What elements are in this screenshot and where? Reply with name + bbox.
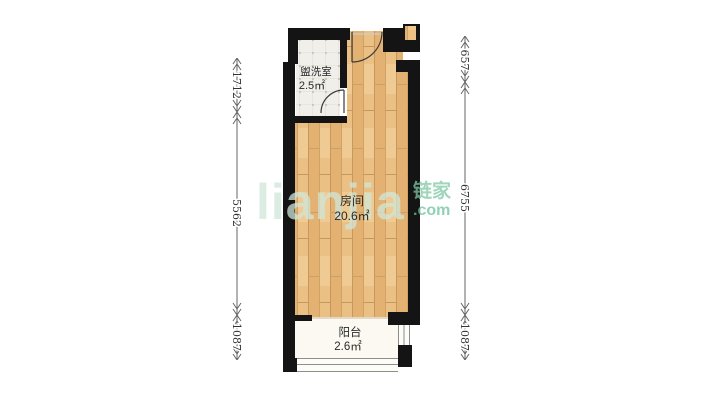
dimension-label-right-middle: 6755 (458, 184, 471, 212)
balcony-label: 阳台 (339, 325, 362, 339)
balcony-area: 2.6㎡ (334, 340, 362, 353)
dimension-label-right-top: 657 (458, 50, 471, 71)
dimension-label-left-top: 1712 (230, 71, 243, 99)
wall-top-right (383, 28, 403, 52)
floor-plan: 1712 5562 1087 657 6755 1087 lianjia 链家 … (0, 0, 710, 400)
dimension-label-right-bottom: 1087 (458, 323, 471, 351)
dimension-label-left-middle: 5562 (230, 199, 243, 227)
wall-washroom-right (340, 40, 347, 88)
main-room-label: 房间 (340, 193, 364, 208)
watermark-brand: 链家 (413, 179, 452, 202)
washroom-label: 盥洗室 (300, 65, 332, 78)
wall-balcony-post-right (398, 345, 412, 367)
wall-balcony-corner-left (283, 358, 297, 372)
watermark-logo: lianjia (256, 174, 405, 230)
watermark-domain: .com (413, 202, 450, 219)
dimension-label-left-bottom: 1087 (230, 323, 243, 351)
doorway-floor (350, 31, 383, 41)
wall-top-left (295, 28, 350, 40)
main-room-area: 20.6㎡ (334, 209, 369, 223)
wall-washroom-bottom (295, 116, 347, 123)
washroom-area: 2.5㎡ (299, 79, 325, 92)
entry-nook-floor (405, 26, 416, 40)
washroom-floor (296, 40, 340, 116)
wall-balcony-left (295, 315, 312, 321)
wall-balcony-right (388, 312, 420, 325)
floor-plan-page: 1712 5562 1087 657 6755 1087 lianjia 链家 … (0, 0, 710, 400)
